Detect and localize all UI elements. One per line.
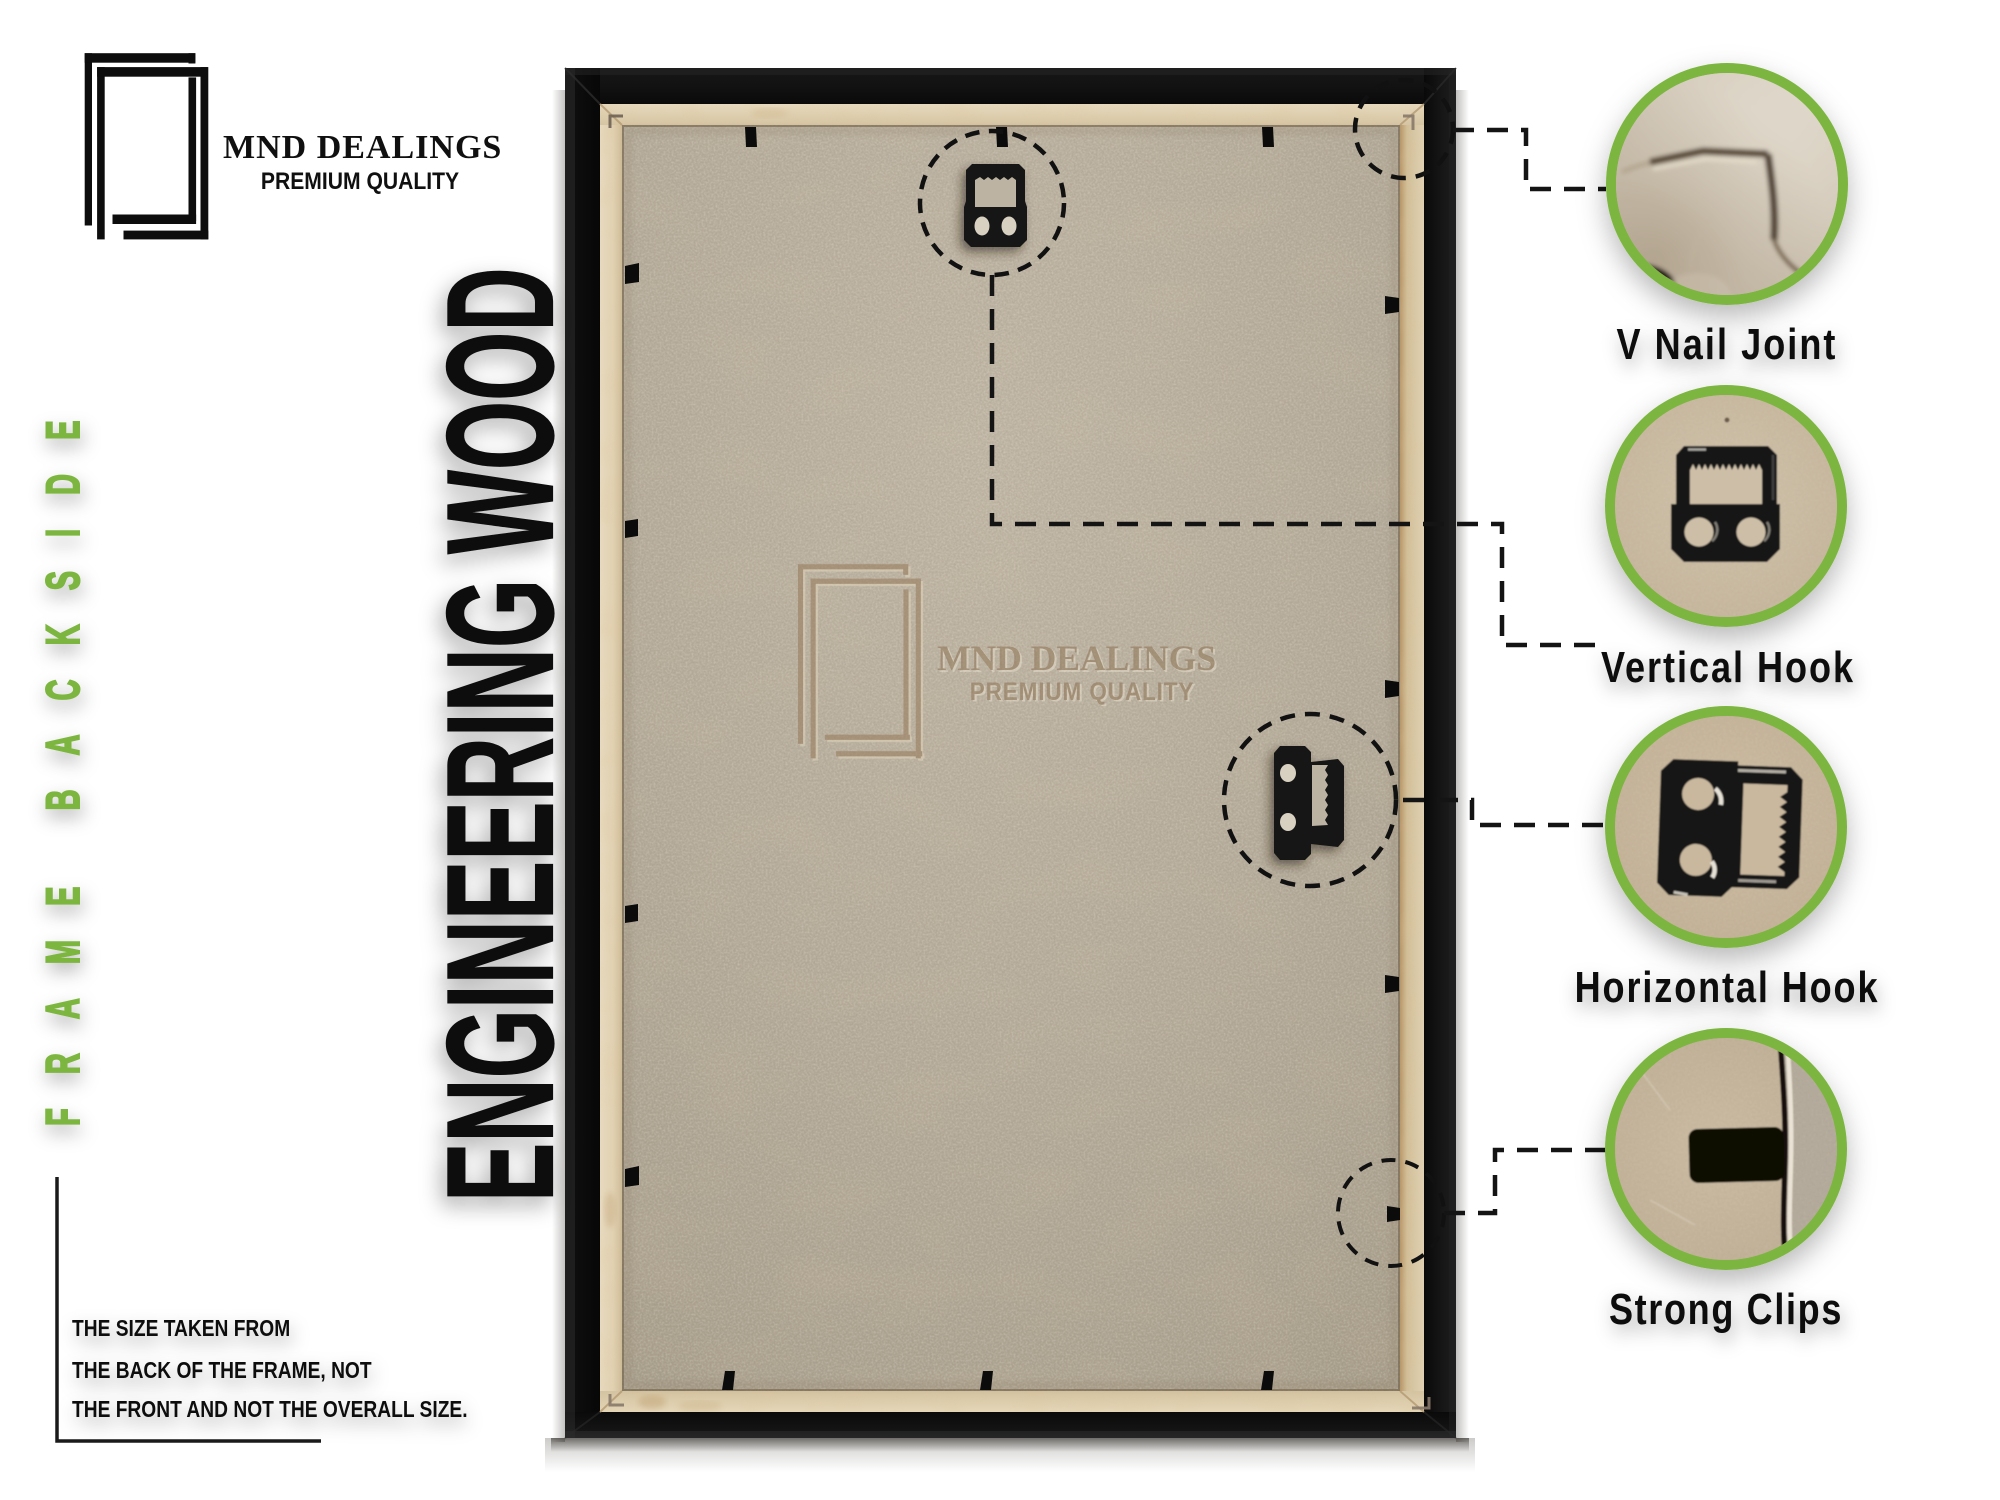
svg-text:THE BACK OF THE FRAME, NOT: THE BACK OF THE FRAME, NOT (72, 1358, 372, 1383)
svg-text:PREMIUM QUALITY: PREMIUM QUALITY (970, 678, 1195, 706)
svg-text:THE FRONT AND NOT THE OVERALL: THE FRONT AND NOT THE OVERALL SIZE. (72, 1397, 468, 1422)
svg-text:Vertical Hook: Vertical Hook (1601, 643, 1855, 692)
svg-text:PREMIUM QUALITY: PREMIUM QUALITY (261, 168, 459, 195)
svg-text:Strong Clips: Strong Clips (1609, 1285, 1843, 1334)
svg-text:ENGINEERING WOOD: ENGINEERING WOOD (416, 267, 586, 1202)
svg-text:V Nail Joint: V Nail Joint (1617, 320, 1838, 369)
svg-text:FRAME BACKSIDE: FRAME BACKSIDE (38, 387, 90, 1126)
svg-text:MND DEALINGS: MND DEALINGS (223, 129, 502, 166)
svg-text:MND DEALINGS: MND DEALINGS (937, 638, 1216, 678)
svg-text:Horizontal Hook: Horizontal Hook (1575, 963, 1880, 1012)
svg-text:THE SIZE TAKEN FROM: THE SIZE TAKEN FROM (72, 1316, 290, 1341)
